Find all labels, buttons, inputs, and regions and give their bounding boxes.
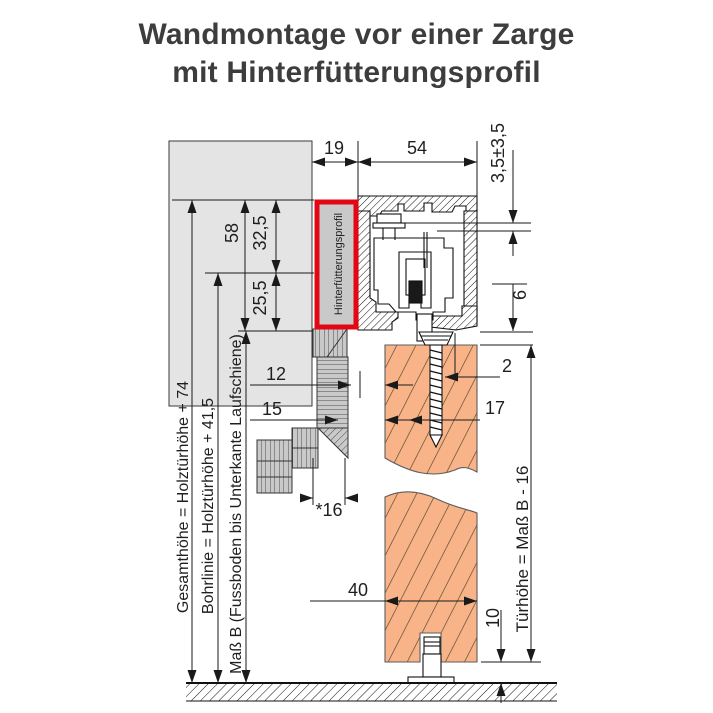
dim-54: 54 bbox=[407, 138, 427, 158]
hanger-bolt-head bbox=[377, 214, 401, 223]
dim-32-5: 32,5 bbox=[250, 215, 270, 250]
floor-guide-stem bbox=[423, 654, 441, 677]
track-top-band bbox=[358, 196, 477, 216]
dim-58: 58 bbox=[222, 223, 242, 243]
hinterfuetterungsprofil-label: Hinterfütterungsprofil bbox=[333, 213, 345, 315]
label-bohrlinie: Bohrlinie = Holztürhöhe + 41,5 bbox=[200, 398, 217, 614]
dim-25-5: 25,5 bbox=[250, 280, 270, 315]
zarge-chamfer bbox=[318, 428, 348, 458]
label-mass-b: Maß B (Fussboden bis Unterkante Laufschi… bbox=[228, 334, 245, 674]
dim-2: 2 bbox=[502, 356, 512, 376]
hinterfuetterungsprofil-highlight: Hinterfütterungsprofil bbox=[317, 202, 356, 327]
screw-head bbox=[419, 332, 453, 345]
technical-drawing: Hinterfütterungsprofil bbox=[0, 0, 713, 713]
zarge-column bbox=[317, 357, 348, 428]
dim-10: 10 bbox=[483, 608, 503, 628]
dim-17: 17 bbox=[485, 398, 505, 418]
diagram-page: Wandmontage vor einer Zarge mit Hinterfü… bbox=[0, 0, 713, 713]
dim-16: *16 bbox=[315, 500, 342, 520]
dim-40: 40 bbox=[348, 580, 368, 600]
zarge-step-low bbox=[257, 440, 292, 493]
dim-6: 6 bbox=[510, 290, 530, 300]
carriage-adjuster bbox=[409, 281, 422, 303]
dim-19: 19 bbox=[324, 138, 344, 158]
hanger-bolt-washer bbox=[373, 223, 405, 228]
dim-3-5: 3,5±3,5 bbox=[488, 123, 508, 183]
dim-15: 15 bbox=[262, 399, 282, 419]
label-tuerhoehe: Türhöhe = Maß B - 16 bbox=[513, 466, 532, 633]
label-gesamthoehe: Gesamthöhe = Holztürhöhe + 74 bbox=[175, 381, 192, 613]
dim-12: 12 bbox=[266, 364, 286, 384]
